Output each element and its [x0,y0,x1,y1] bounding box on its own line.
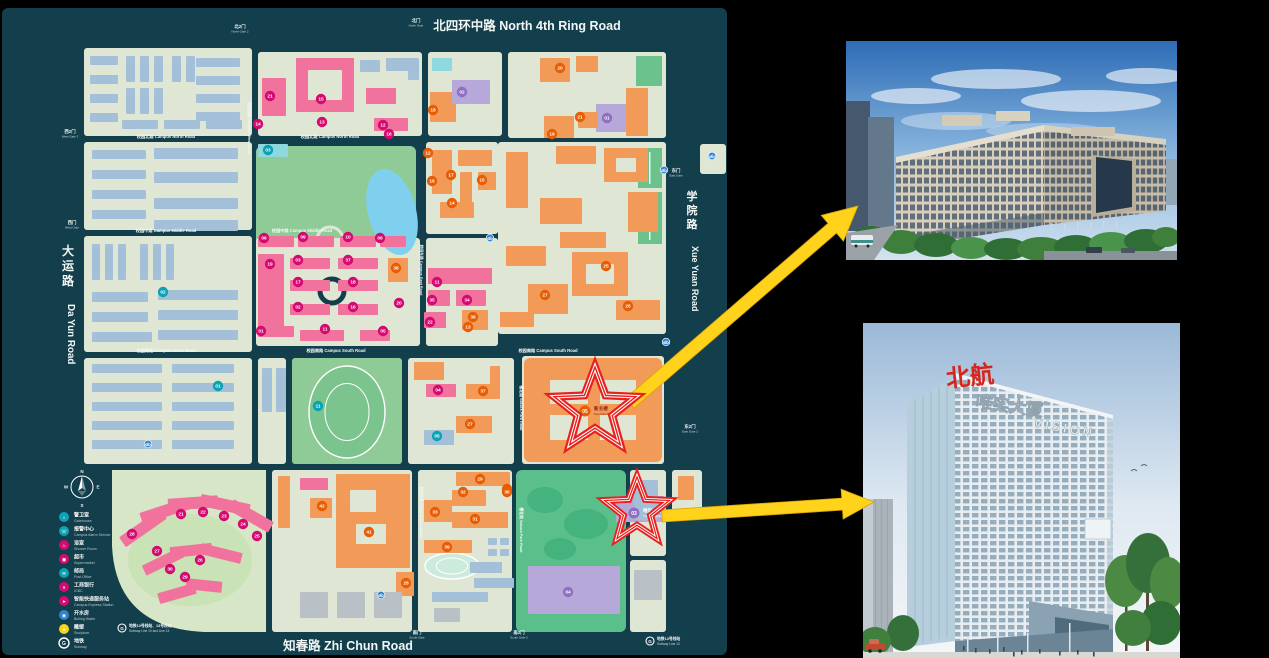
svg-text:29: 29 [477,477,483,483]
svg-text:地铁13号线站: 地铁13号线站 [657,636,680,641]
road-label-vertical: 校园东路 Campus East Road [419,487,424,539]
map-building [336,474,410,568]
map-building [634,570,662,600]
map-marker-29: 29 [180,572,190,582]
map-marker-13: 13 [317,117,327,127]
map-building [678,476,694,500]
svg-text:运: 运 [62,259,74,273]
map-building [490,366,500,392]
map-marker-30: 30 [165,564,175,574]
map-building [560,232,606,248]
map-marker-37: 37 [478,386,488,396]
svg-text:South Gate 2: South Gate 2 [510,635,528,639]
svg-text:13: 13 [319,120,325,126]
svg-text:21: 21 [267,94,273,100]
svg-text:学: 学 [687,189,698,203]
map-building [153,244,161,280]
map-marker-20: 20 [555,63,565,73]
map-building [92,312,148,322]
campus-map[interactable]: 北四环中路 North 4th Ring Road知春路 Zhi Chun Ro… [0,0,730,658]
map-building [488,549,497,556]
svg-text:22: 22 [427,320,433,326]
svg-text:18: 18 [350,280,356,286]
map-building [276,368,286,412]
map-feature [636,56,662,86]
svg-text:05: 05 [380,329,386,335]
map-marker-31: 31 [470,514,480,524]
svg-text:33: 33 [432,510,438,516]
road-label: 校园南路 Campus South Road [306,347,366,354]
map-marker-17: 17 [446,170,456,180]
map-marker-02: 02 [158,287,168,297]
svg-text:41: 41 [366,530,372,536]
svg-text:05: 05 [434,434,440,440]
map-building [500,549,509,556]
svg-text:G: G [120,626,124,631]
map-feature [544,538,576,560]
svg-text:02: 02 [459,90,465,96]
map-building [92,364,162,373]
svg-text:North Gate 2: North Gate 2 [231,29,249,33]
map-marker-42: 42 [317,501,327,511]
map-building [172,364,234,373]
background-tower [846,101,870,231]
svg-text:12: 12 [380,123,386,129]
map-marker-25: 25 [252,531,262,541]
map-marker-08: 08 [375,233,385,243]
svg-text:03: 03 [265,148,271,154]
svg-text:16: 16 [350,305,356,311]
map-building [434,608,460,622]
map-marker-26: 26 [623,301,633,311]
svg-text:27: 27 [467,422,473,428]
svg-text:01: 01 [258,329,264,335]
svg-text:05: 05 [582,409,588,415]
map-building [470,562,502,573]
sign-beihang: 北航 [945,360,996,393]
map-marker-39: 39 [442,542,452,552]
svg-text:⌂: ⌂ [63,515,66,520]
map-building [408,58,419,80]
svg-text:17: 17 [448,173,454,179]
svg-text:16: 16 [429,179,435,185]
map-marker-10: 10 [343,232,353,242]
map-feature [527,487,563,513]
svg-text:16: 16 [386,132,392,138]
svg-text:03: 03 [631,511,637,517]
svg-text:36: 36 [470,315,476,321]
svg-text:02: 02 [295,305,301,311]
svg-text:35: 35 [429,298,435,304]
map-marker-16: 16 [384,129,394,139]
map-building [196,94,240,103]
svg-text:32: 32 [460,490,466,496]
archway [1096,157,1132,213]
bicycle-icon [486,234,494,242]
map-marker-22: 22 [198,507,208,517]
map-building [616,158,636,172]
svg-text:开水房: 开水房 [74,610,89,617]
map-building [90,75,118,84]
svg-text:Post Office: Post Office [74,575,92,579]
map-building [92,292,148,302]
map-marker-09: 09 [298,232,308,242]
map-building [500,312,534,327]
map-marker-02: 02 [457,87,467,97]
svg-text:28: 28 [129,532,135,538]
svg-text:01: 01 [215,384,221,390]
svg-text:South Gate: South Gate [409,635,425,639]
map-marker-06: 06 [259,233,269,243]
road-label: 校园北路 Campus North Road [301,133,360,140]
svg-text:28: 28 [403,581,409,587]
map-marker-13: 13 [463,322,473,332]
map-marker-21: 21 [575,112,585,122]
map-marker-20: 20 [394,298,404,308]
map-building [196,112,240,121]
svg-text:邮局: 邮局 [74,568,84,575]
road-label: 校园北路 Campus North Road [137,133,196,140]
new-main-building-image [846,41,1177,260]
map-marker-18: 18 [348,277,358,287]
legend-item: ⌂警卫室Gatehouse [59,512,92,524]
map-building [140,56,149,82]
map-building [118,244,126,280]
svg-text:Subway: Subway [74,645,87,649]
svg-text:West Gate 2: West Gate 2 [62,134,79,138]
svg-text:East Gate 2: East Gate 2 [682,429,698,433]
svg-text:✉: ✉ [62,571,66,576]
map-building [528,566,620,614]
svg-text:★: ★ [62,627,66,632]
svg-text:大: 大 [62,243,74,258]
map-marker-16: 16 [348,302,358,312]
map-building [300,478,328,490]
map-building [172,383,234,392]
road-label: 北四环中路 North 4th Ring Road [433,18,621,33]
map-building [628,192,658,232]
svg-text:路: 路 [687,217,699,231]
map-marker-05: 05 [378,326,388,336]
svg-text:Boiling Water: Boiling Water [74,617,96,621]
vision-tower-image: 北航 唯实大厦 VISION [863,323,1180,658]
svg-text:Campus Express Station: Campus Express Station [74,603,114,607]
map-marker-19: 19 [265,259,275,269]
svg-text:G: G [62,641,66,647]
map-marker-14: 14 [447,198,457,208]
map-marker-12: 12 [378,120,388,130]
map-building [458,150,492,166]
building-callout-03: 03唯实大厦VISION Building [629,507,664,519]
map-marker-38: 38 [391,263,401,273]
map-building [105,244,113,280]
svg-text:报警中心: 报警中心 [74,526,94,533]
map-building [154,172,238,183]
road-label: 校园中路 Campus Middle Road [136,227,197,234]
svg-text:18: 18 [430,108,436,114]
map-building [164,120,200,129]
photo-new-main-building[interactable] [846,41,1177,260]
svg-text:20: 20 [396,301,402,307]
map-building [206,120,242,129]
svg-text:08: 08 [377,236,383,242]
bicycle-icon [377,591,385,599]
map-building [196,76,240,85]
map-marker-33: 33 [430,507,440,517]
bicycle-icon [662,338,670,346]
svg-text:13: 13 [465,325,471,331]
map-building [172,421,234,430]
map-building [350,490,376,512]
svg-text:N: N [80,469,83,474]
map-building [92,244,100,280]
map-building [92,421,162,430]
map-marker-27: 27 [152,546,162,556]
photo-vision-tower[interactable]: 北航 唯实大厦 VISION [863,323,1180,658]
bicycle-icon [708,152,716,160]
map-marker-30: 30 [502,487,512,497]
svg-text:12: 12 [425,151,431,157]
map-building [92,383,162,392]
svg-text:North Gate: North Gate [409,23,424,27]
screenshot-canvas: 北四环中路 North 4th Ring Road知春路 Zhi Chun Ro… [0,0,1269,658]
map-building [126,88,135,114]
svg-text:☏: ☏ [61,529,67,534]
map-building [196,58,240,67]
map-marker-15: 15 [316,94,326,104]
map-building [337,592,365,618]
map-building [92,332,152,342]
svg-text:New Main Building: New Main Building [594,412,618,416]
map-building [432,592,488,602]
svg-text:地铁10号线站、13号线站: 地铁10号线站、13号线站 [129,623,172,628]
svg-text:26: 26 [625,304,631,310]
svg-text:20: 20 [557,66,563,72]
map-building [360,60,380,72]
map-building [172,402,234,411]
map-building [92,170,146,179]
svg-text:Campus Alarm Service: Campus Alarm Service [74,533,111,537]
map-marker-14: 14 [253,119,263,129]
car [1121,248,1135,253]
map-building [186,56,195,82]
map-marker-23: 23 [219,511,229,521]
map-marker-24: 24 [238,519,248,529]
svg-text:工商银行: 工商银行 [74,582,94,589]
svg-text:04: 04 [565,590,571,596]
svg-text:路: 路 [62,273,75,288]
svg-text:37: 37 [345,258,351,264]
svg-text:09: 09 [300,235,306,241]
svg-text:17: 17 [295,280,301,286]
map-building [166,244,174,280]
svg-text:25: 25 [254,534,260,540]
map-building [92,210,146,219]
map-building [154,148,238,159]
svg-text:24: 24 [240,522,246,528]
map-marker-27: 27 [465,419,475,429]
svg-text:Subway Line 10 and Line 13: Subway Line 10 and Line 13 [129,629,169,633]
bicycle-icon [144,440,152,448]
svg-text:31: 31 [472,517,478,523]
map-building [488,538,497,545]
road-label-vertical: 樱花路 Sakura Park Road [519,385,524,432]
svg-text:新主楼: 新主楼 [594,405,608,412]
map-building [474,578,514,588]
map-marker-29: 29 [475,474,485,484]
map-building [90,113,118,122]
svg-text:Shower Room: Shower Room [74,547,97,551]
svg-text:02: 02 [160,290,166,296]
map-building [414,362,444,380]
svg-text:15: 15 [318,97,324,103]
svg-text:S: S [80,503,83,508]
svg-text:29: 29 [182,575,188,581]
svg-text:Da Yun Road: Da Yun Road [65,304,76,364]
svg-text:浴室: 浴室 [74,540,84,547]
map-building [616,300,660,320]
svg-text:Xue Yuan Road: Xue Yuan Road [690,246,700,311]
svg-text:West Gate: West Gate [65,225,79,229]
svg-text:03: 03 [295,258,301,264]
svg-text:◉: ◉ [62,613,66,618]
svg-text:21: 21 [577,115,583,121]
svg-text:Subway Line 13: Subway Line 13 [657,642,680,646]
svg-text:唯实大厦: 唯实大厦 [643,507,662,514]
svg-text:Supermarket: Supermarket [74,561,95,565]
map-building [500,538,509,545]
bicycle-icon [660,166,668,174]
map-building [506,246,546,266]
svg-text:♨: ♨ [62,543,66,548]
svg-text:警卫室: 警卫室 [73,512,89,519]
map-building [140,244,148,280]
map-marker-04: 04 [563,587,573,597]
map-marker-02: 02 [293,302,303,312]
svg-text:34: 34 [464,298,470,304]
map-building [366,88,396,104]
street [1044,251,1177,260]
svg-text:➤: ➤ [62,599,66,604]
svg-text:06: 06 [261,236,267,242]
svg-text:院: 院 [687,203,698,217]
map-building [172,440,234,449]
svg-text:21: 21 [178,512,184,518]
svg-text:超市: 超市 [73,554,84,561]
map-building [140,88,149,114]
svg-text:地铁: 地铁 [74,638,85,645]
map-building [90,94,118,103]
map-building [452,490,486,506]
svg-text:01: 01 [604,116,610,122]
svg-text:VISION Building: VISION Building [643,514,664,518]
road-label-vertical: 校园西路 Campus West Road [247,102,252,155]
svg-text:38: 38 [393,266,399,272]
svg-text:11: 11 [315,404,320,410]
map-marker-41: 41 [364,527,374,537]
map-marker-25: 25 [601,261,611,271]
stadium-track [309,366,385,458]
road-label-vertical: 樱花路 Sakura Park Road [519,507,524,554]
map-marker-18: 18 [428,105,438,115]
map-building [126,56,135,82]
map-marker-12: 12 [423,148,433,158]
svg-text:30: 30 [504,490,510,496]
map-marker-15: 15 [477,175,487,185]
map-marker-21: 21 [176,509,186,519]
svg-text:26: 26 [197,558,203,564]
map-marker-01: 01 [602,113,612,123]
svg-text:19: 19 [549,132,555,138]
map-building [278,476,290,528]
svg-text:39: 39 [444,545,450,551]
svg-text:11: 11 [322,327,327,333]
map-building [154,198,238,209]
map-building [506,152,528,208]
svg-text:04: 04 [435,388,441,394]
svg-text:14: 14 [255,122,261,128]
map-marker-26: 26 [195,555,205,565]
svg-text:ICBC: ICBC [74,589,83,593]
map-feature [564,509,608,539]
map-marker-11: 11 [320,324,330,334]
road-label-vertical: 校园东路 Campus East Road [419,245,424,297]
map-marker-22: 22 [425,317,435,327]
map-building [262,368,272,412]
svg-text:智能快递服务站: 智能快递服务站 [74,596,109,603]
map-building [550,404,636,415]
svg-text:10: 10 [345,235,351,241]
map-building [308,70,342,100]
svg-text:14: 14 [449,201,455,207]
map-marker-36: 36 [468,312,478,322]
map-building [122,120,158,129]
map-marker-01: 01 [213,381,223,391]
map-marker-16: 16 [427,176,437,186]
road-label: 校园南路 Campus South Road [518,347,578,354]
map-marker-03: 03 [263,145,273,155]
map-marker-28: 28 [127,529,137,539]
car [1086,247,1102,253]
map-building [90,56,118,65]
svg-text:雕塑: 雕塑 [74,624,84,631]
map-marker-21: 21 [265,91,275,101]
map-marker-03: 03 [293,255,303,265]
map-building [300,592,328,618]
map-building [154,88,163,114]
map-marker-35: 35 [427,295,437,305]
svg-text:30: 30 [167,567,173,573]
map-building [92,190,146,199]
map-marker-17: 17 [293,277,303,287]
road-label: 知春路 Zhi Chun Road [282,638,413,653]
map-marker-34: 34 [462,295,472,305]
map-building [576,56,598,72]
svg-text:G: G [648,639,652,644]
map-marker-01: 01 [256,326,266,336]
map-marker-05: 05 [432,431,442,441]
road-label: 校园南路 Campus South Road [136,347,196,354]
svg-text:Sculpture: Sculpture [74,631,89,635]
map-building [92,150,146,159]
map-marker-11: 11 [432,277,442,287]
svg-text:27: 27 [154,549,160,555]
svg-text:15: 15 [479,178,485,184]
map-marker-04: 04 [433,385,443,395]
map-marker-37: 37 [343,255,353,265]
map-marker-32: 32 [458,487,468,497]
map-building [92,402,162,411]
